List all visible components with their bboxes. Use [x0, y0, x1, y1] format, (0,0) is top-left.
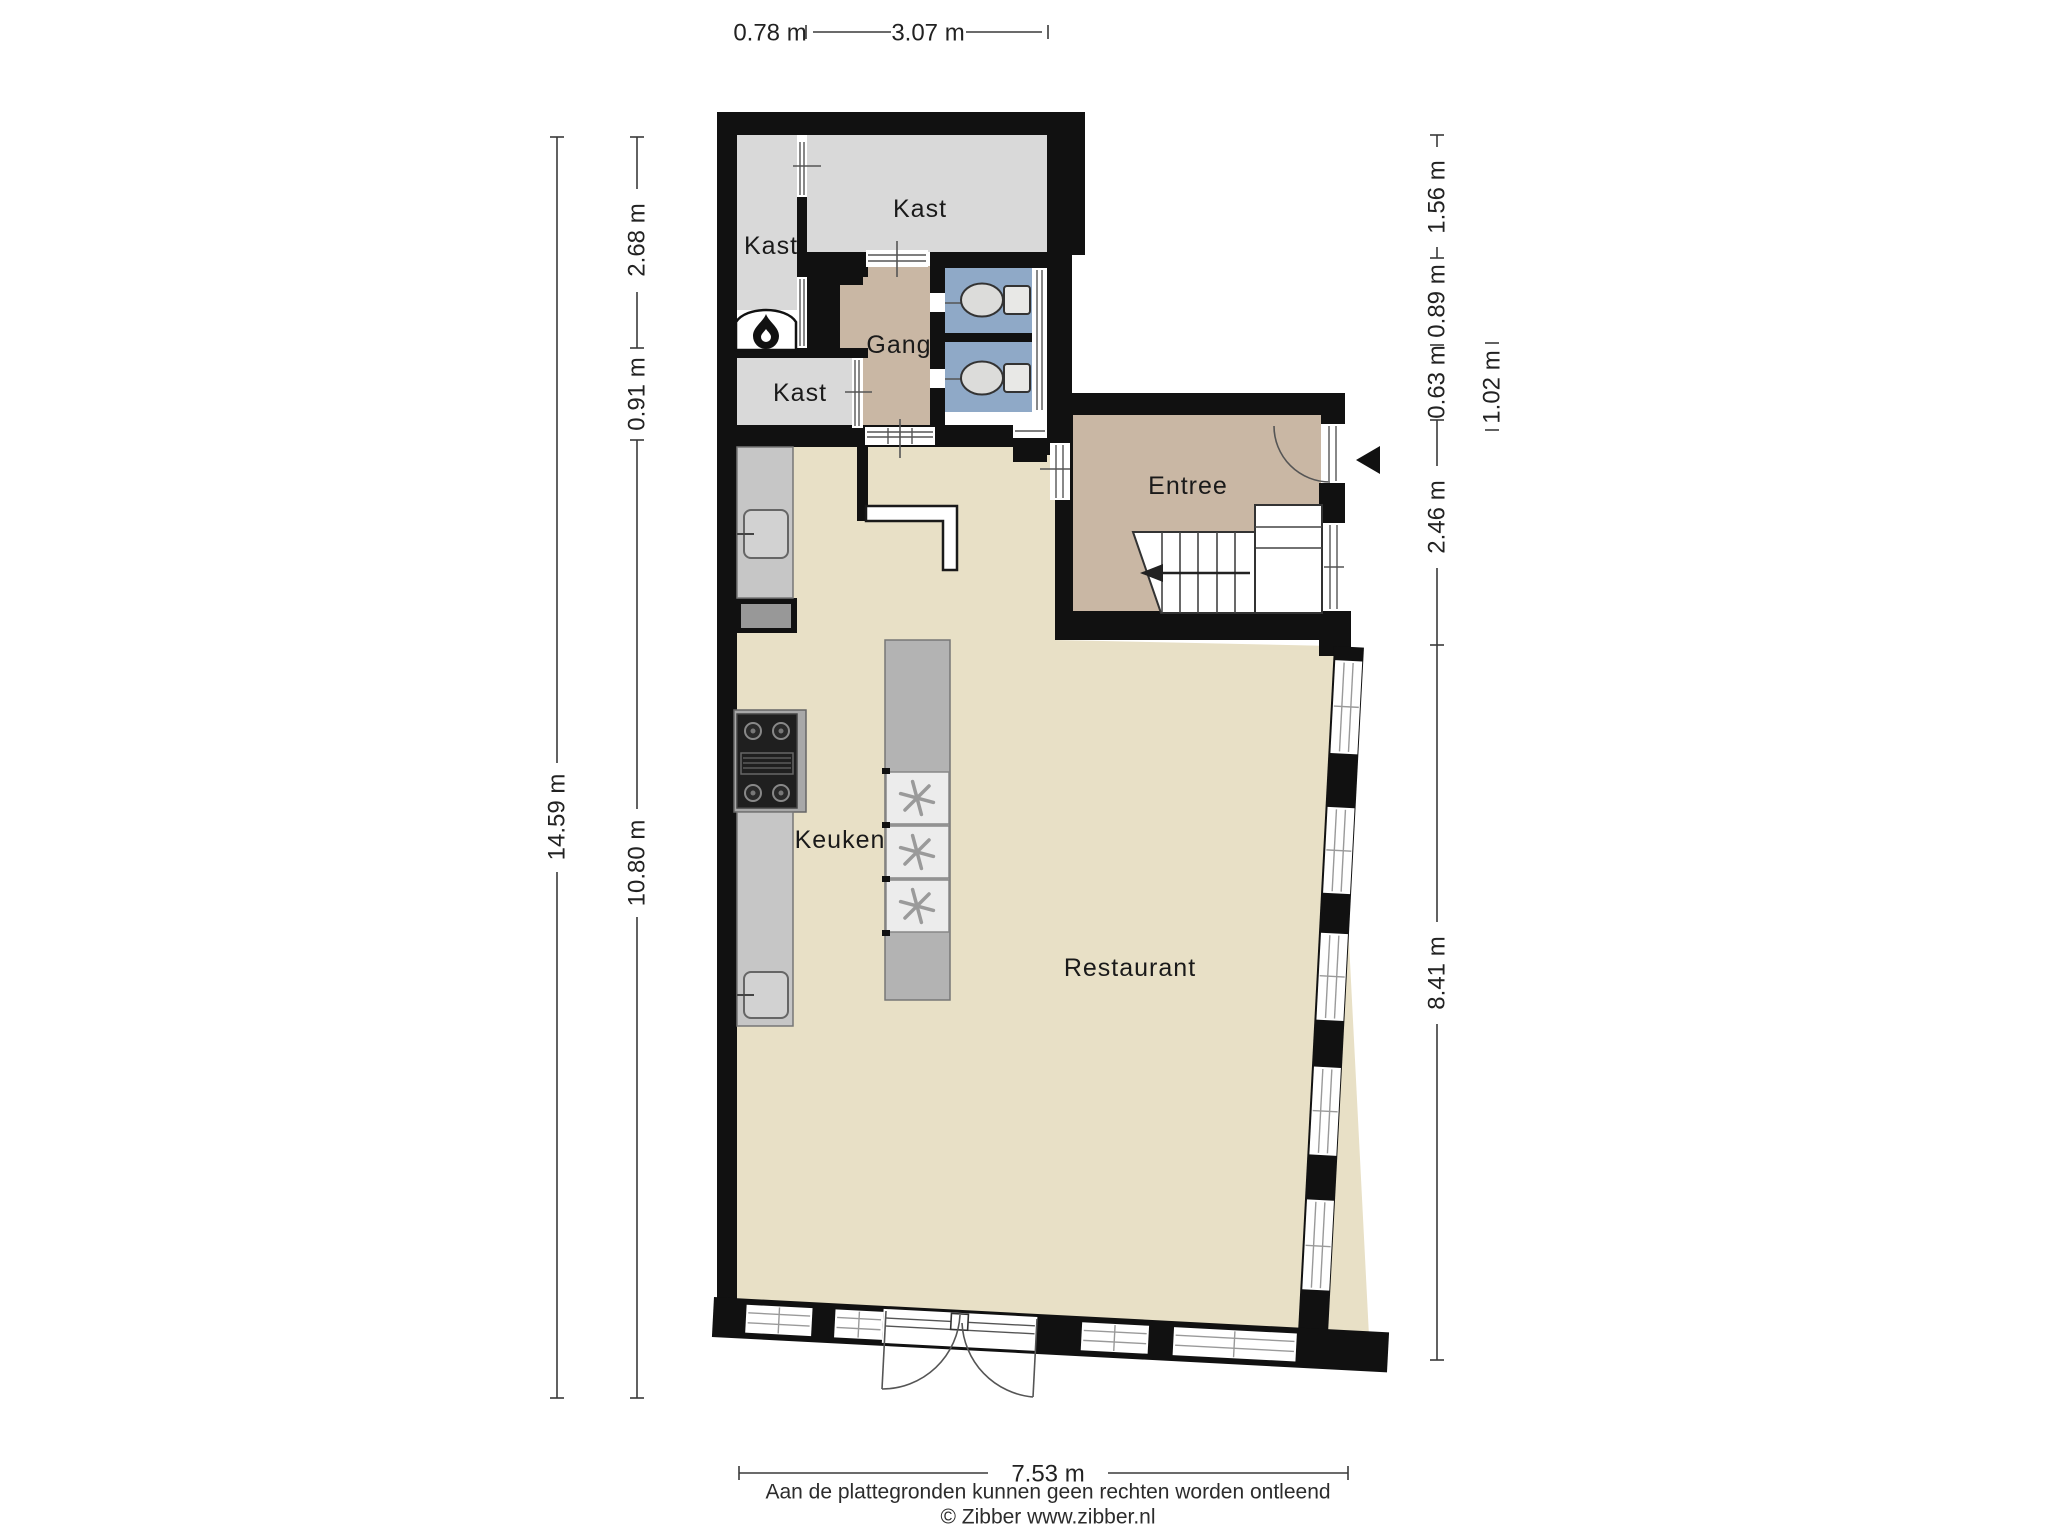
- dim-right-outer: 1.02 m: [1479, 350, 1506, 423]
- dim-left-outer: 14.59 m: [544, 774, 571, 861]
- footer-disclaimer: Aan de plattegronden kunnen geen rechten…: [765, 1481, 1330, 1504]
- floorplan-page: Kast Kast Kast Gang Entree Keuken Restau…: [0, 0, 2048, 1536]
- floor-kast-top-left: [737, 133, 797, 310]
- dim-right-inner-3: 2.46 m: [1424, 480, 1451, 553]
- kitchen-island: [882, 640, 950, 1000]
- toilet1-door: [930, 293, 945, 312]
- fireplace: [736, 310, 796, 350]
- dim-right-inner-0: 1.56 m: [1424, 160, 1451, 233]
- dim-left-inner-2: 10.80 m: [624, 820, 651, 907]
- kast-door-lower: [797, 277, 807, 348]
- footer-copyright: © Zibber www.zibber.nl: [940, 1506, 1155, 1529]
- dim-top-0: 0.78 m: [733, 20, 806, 47]
- dim-left-inner-0: 2.68 m: [624, 203, 651, 276]
- dim-right-inner-2: 0.63 m: [1424, 345, 1451, 418]
- kast-lower-door: [852, 358, 863, 428]
- label-kast-lower: Kast: [773, 379, 827, 407]
- label-entree: Entree: [1148, 472, 1228, 500]
- label-kast-top: Kast: [893, 195, 947, 223]
- footer: Aan de plattegronden kunnen geen rechten…: [765, 1481, 1330, 1529]
- label-kast-top-left: Kast: [744, 232, 798, 260]
- label-keuken: Keuken: [795, 826, 886, 854]
- dim-right-inner-1: 0.89 m: [1424, 264, 1451, 337]
- toilet-icon: [961, 284, 1003, 317]
- dim-left-inner-1: 0.91 m: [624, 357, 651, 430]
- entree-side-window: [1050, 443, 1070, 500]
- kitchen-appliance-recess: [741, 604, 791, 628]
- toilet2-door: [930, 369, 945, 388]
- kitchen-counter-top: [737, 447, 793, 598]
- dim-right-inner-4: 8.41 m: [1424, 936, 1451, 1009]
- toilet-2: [961, 362, 1030, 395]
- floorplan-canvas: Kast Kast Kast Gang Entree Keuken Restau…: [0, 0, 2048, 1536]
- kitchen-counter-bottom: [737, 812, 793, 1026]
- stove: [734, 710, 806, 812]
- toilet-1: [961, 284, 1030, 317]
- toilet-window: [1032, 268, 1047, 412]
- label-gang: Gang: [866, 331, 931, 359]
- toilet-bottom-strip: [947, 412, 1030, 423]
- toilet-icon: [961, 362, 1003, 395]
- dim-top-1: 3.07 m: [891, 20, 964, 47]
- front-door: [1323, 424, 1343, 483]
- entrance-arrow-icon: [1356, 446, 1380, 474]
- floor-kast-top: [807, 133, 1047, 252]
- label-restaurant: Restaurant: [1064, 954, 1196, 982]
- kast-door-upper: [797, 140, 807, 197]
